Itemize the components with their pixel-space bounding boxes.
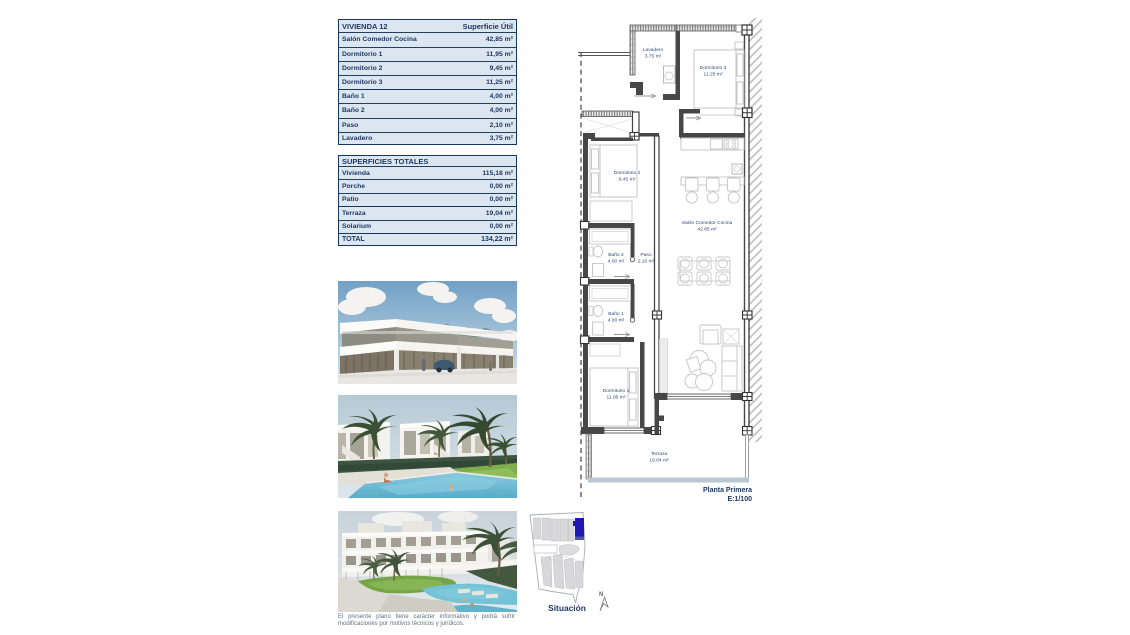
- svg-text:Paso: Paso: [640, 252, 651, 258]
- svg-text:4.00 m²: 4.00 m²: [608, 259, 625, 265]
- svg-text:19.04 m²: 19.04 m²: [649, 458, 669, 464]
- svg-text:3.75 m²: 3.75 m²: [645, 54, 662, 60]
- svg-text:11.25 m²: 11.25 m²: [704, 72, 723, 78]
- svg-text:E:1/100: E:1/100: [727, 496, 752, 503]
- svg-text:N: N: [599, 592, 603, 598]
- svg-text:2.10 m²: 2.10 m²: [638, 259, 655, 265]
- svg-text:Dormitorio 3: Dormitorio 3: [700, 65, 727, 71]
- svg-text:9.45 m²: 9.45 m²: [619, 177, 636, 183]
- svg-text:Terraza: Terraza: [651, 451, 668, 457]
- svg-text:Lavadero: Lavadero: [643, 47, 664, 53]
- svg-text:Salón Comedor Cocina: Salón Comedor Cocina: [682, 220, 733, 226]
- svg-text:11.95 m²: 11.95 m²: [607, 395, 626, 401]
- svg-text:Dormitorio 2: Dormitorio 2: [614, 170, 641, 176]
- svg-text:Baño 2: Baño 2: [608, 252, 624, 258]
- svg-text:42.85 m²: 42.85 m²: [697, 227, 717, 233]
- svg-text:4.00 m²: 4.00 m²: [608, 318, 625, 324]
- svg-text:Baño 1: Baño 1: [608, 311, 624, 317]
- svg-text:Dormitorio 1: Dormitorio 1: [603, 388, 630, 394]
- svg-text:Planta Primera: Planta Primera: [703, 487, 752, 494]
- svg-text:Situación: Situación: [548, 603, 586, 613]
